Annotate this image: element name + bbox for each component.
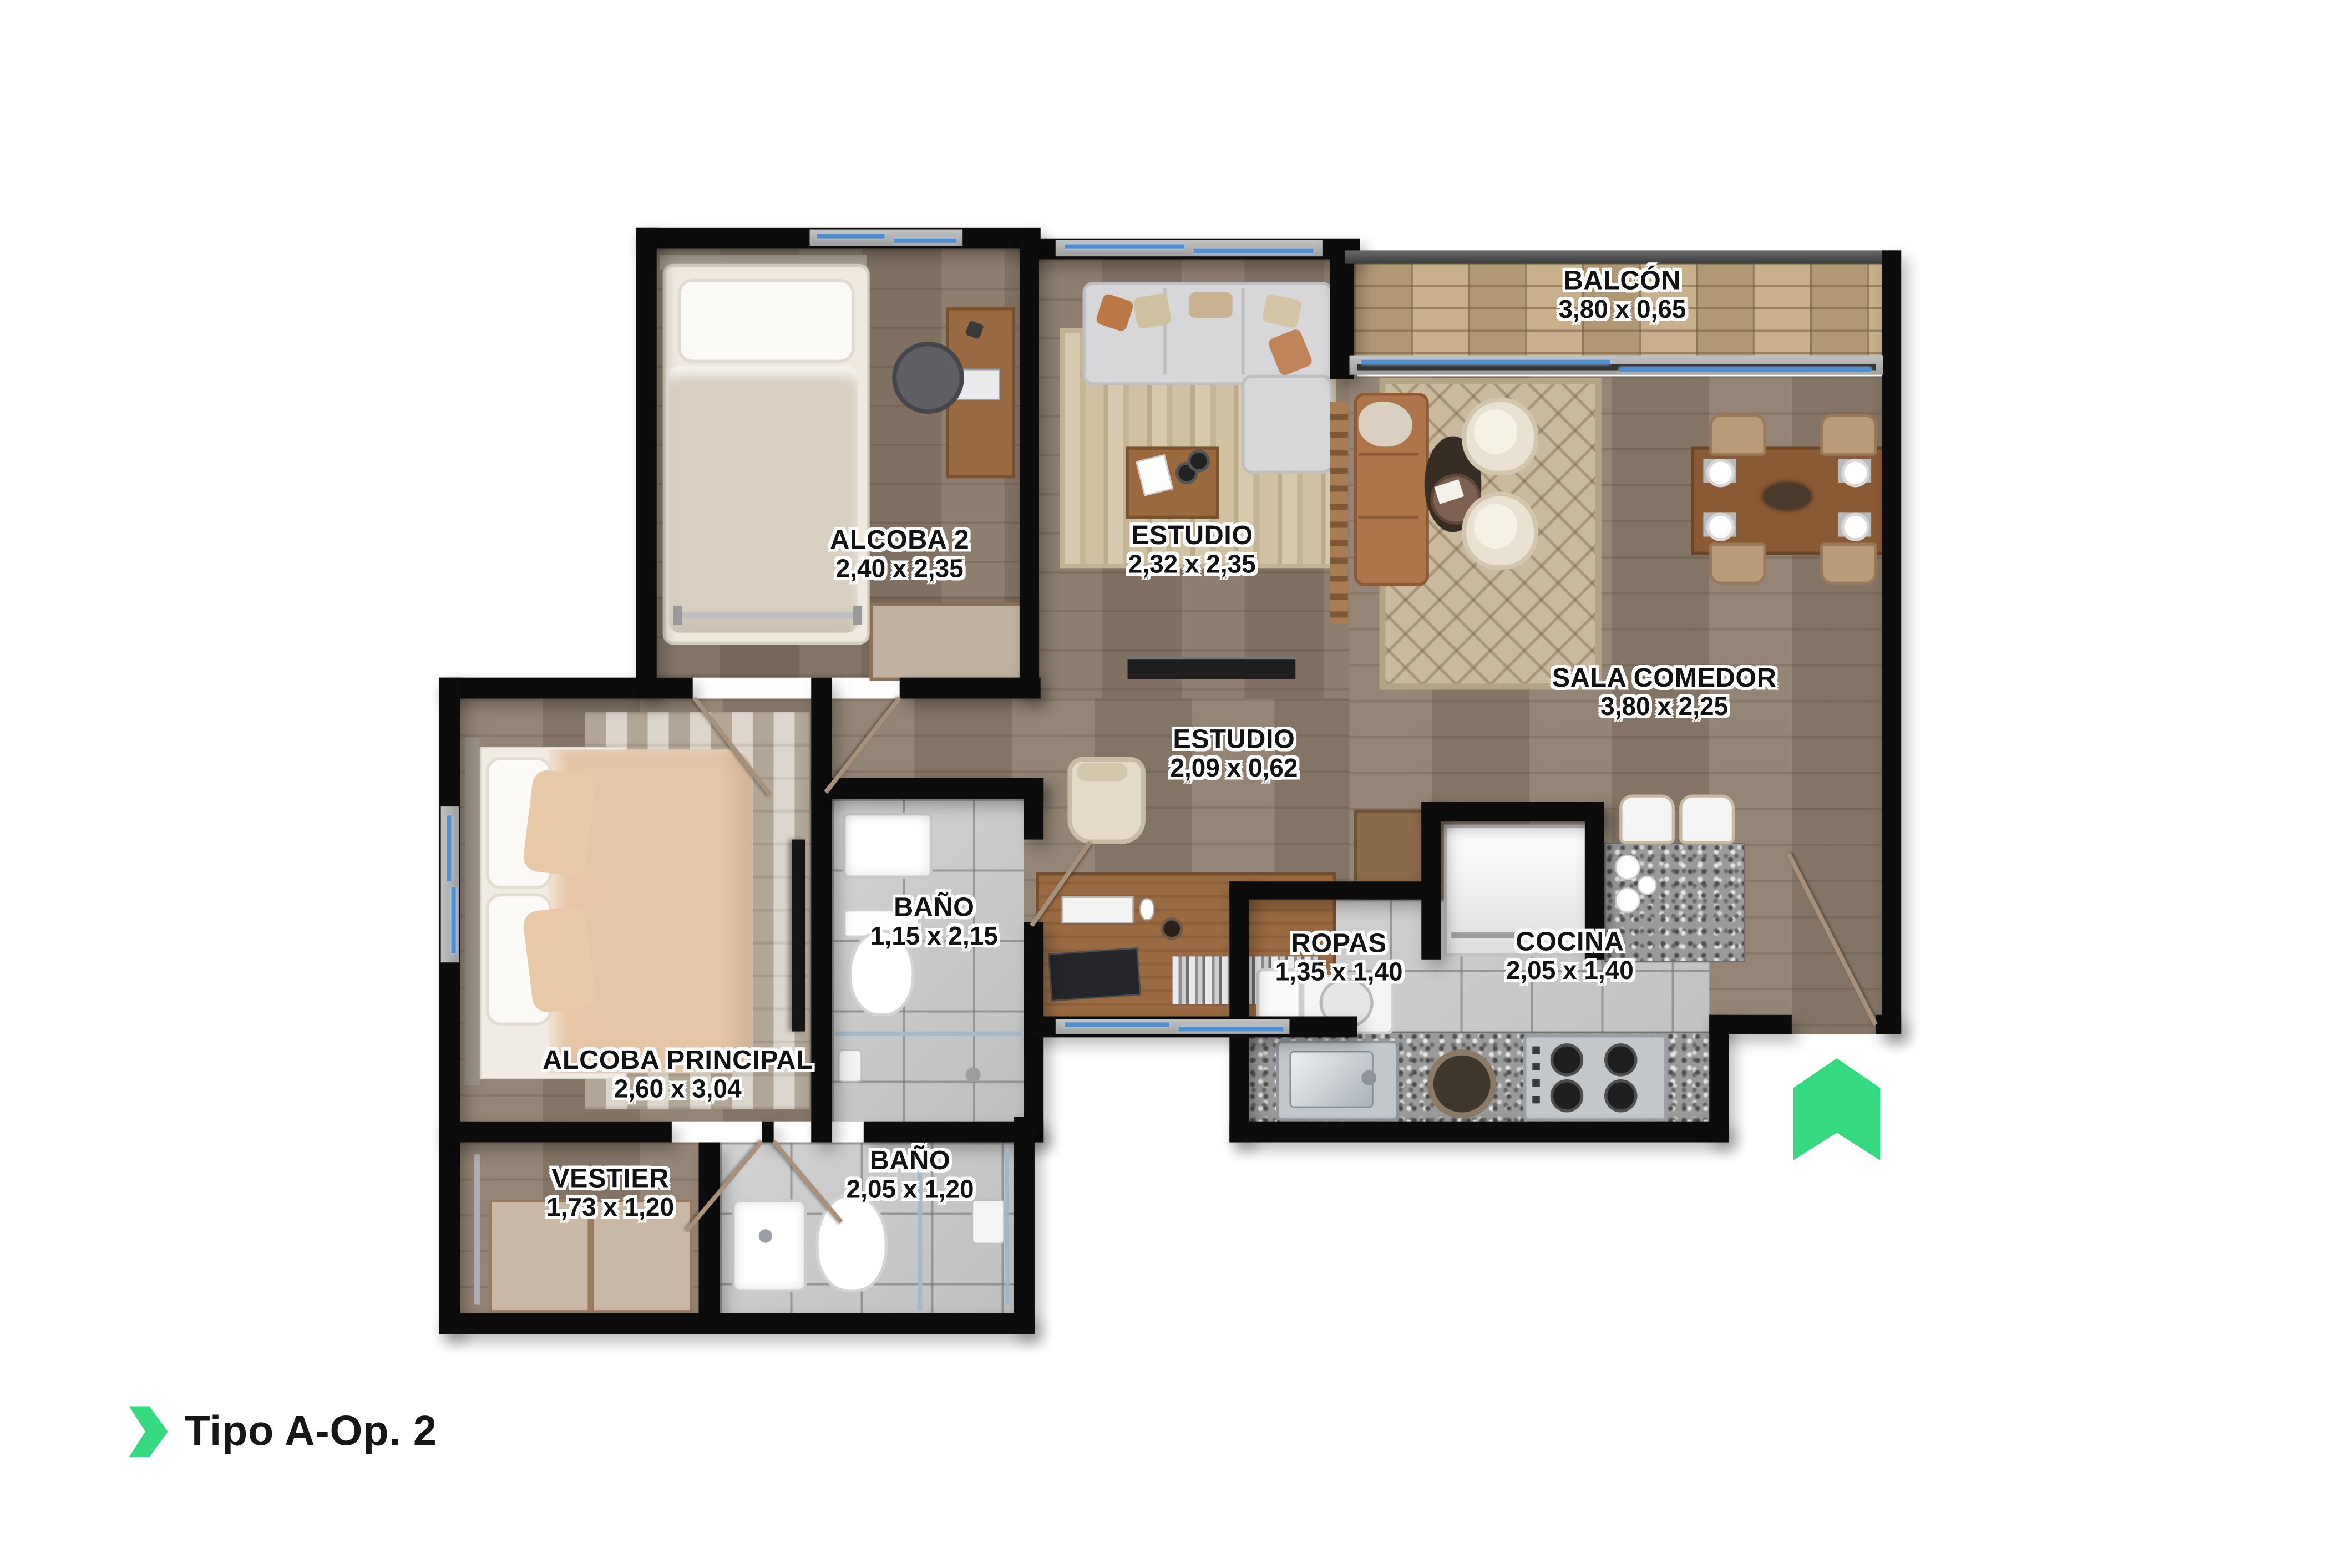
desk-mouse bbox=[1139, 898, 1154, 921]
closet-rod bbox=[678, 612, 858, 620]
room-label-balcon: BALCÓN 3,80 x 0,65 bbox=[1558, 265, 1686, 323]
bano2-shower-head bbox=[971, 1199, 1004, 1244]
floor-plan-canvas: BALCÓN 3,80 x 0,65 ALCOBA 2 2,40 x 2,35 … bbox=[0, 0, 2351, 1568]
stove-knobs bbox=[1532, 1047, 1540, 1104]
table-centerpiece bbox=[1764, 483, 1811, 510]
room-label-alcoba-principal: ALCOBA PRINCIPAL 2,60 x 3,04 bbox=[543, 1045, 813, 1103]
room-label-bano1: BAÑO 1,15 x 2,15 bbox=[870, 892, 998, 950]
sofa-seat-line2 bbox=[1242, 288, 1244, 375]
burner-3 bbox=[1551, 1079, 1583, 1112]
coffee-table-cup2 bbox=[1188, 450, 1210, 473]
room-label-alcoba2: ALCOBA 2 2,40 x 2,35 bbox=[830, 525, 969, 583]
room-label-ropas: ROPAS 1,35 x 1,40 bbox=[1275, 928, 1403, 986]
double-bed-headboard bbox=[465, 738, 480, 1085]
bed-pillow bbox=[678, 279, 855, 363]
room-label-estudio: ESTUDIO 2,32 x 2,35 bbox=[1128, 520, 1256, 579]
plate-tl bbox=[1706, 459, 1735, 487]
bano1-shower-glass bbox=[835, 1032, 1021, 1036]
kitchen-faucet bbox=[1361, 1070, 1376, 1085]
burner-1 bbox=[1551, 1043, 1583, 1076]
bar-stool-1 bbox=[1619, 794, 1675, 844]
armchair-1-seat bbox=[1474, 409, 1517, 454]
bar-stool-2 bbox=[1679, 794, 1735, 844]
leather-sofa-line2 bbox=[1359, 516, 1418, 519]
study-chair-back bbox=[1077, 763, 1128, 781]
bano1-sink bbox=[843, 813, 933, 879]
closet-sliding-panel bbox=[870, 603, 1041, 681]
leather-sofa-line1 bbox=[1359, 453, 1418, 455]
room-label-sala-comedor: SALA COMEDOR 3,80 x 2,25 bbox=[1552, 663, 1777, 721]
bano2-faucet bbox=[759, 1229, 772, 1242]
sofa-chaise bbox=[1242, 375, 1333, 474]
bano1-drain bbox=[966, 1067, 981, 1082]
bar-plate-1 bbox=[1615, 855, 1640, 880]
burner-2 bbox=[1604, 1043, 1637, 1076]
bar-plate-2 bbox=[1615, 887, 1640, 913]
sofa-pillow-tan bbox=[1189, 292, 1232, 318]
desk-keyboard bbox=[1062, 896, 1134, 923]
dining-chair-tl bbox=[1709, 414, 1766, 456]
desk-coffee-cup bbox=[1161, 917, 1183, 940]
wall-tv bbox=[792, 840, 805, 1032]
fur-throw bbox=[1359, 402, 1412, 446]
stove bbox=[1523, 1034, 1667, 1122]
vestier-rod bbox=[474, 1154, 480, 1304]
balcony-railing bbox=[1345, 250, 1901, 263]
plan-title: Tipo A-Op. 2 bbox=[129, 1406, 437, 1457]
closet-rod-bracket-l bbox=[673, 606, 682, 625]
kitchen-sink-basin bbox=[1289, 1051, 1373, 1108]
plate-tr bbox=[1841, 459, 1869, 487]
bano2-glass-panel bbox=[1005, 1148, 1009, 1304]
pillow-peach-1 bbox=[522, 769, 597, 877]
entry-arrow-icon bbox=[1793, 1058, 1881, 1160]
dining-chair-br bbox=[1820, 542, 1877, 585]
chevron-icon bbox=[129, 1406, 168, 1457]
dining-chair-tr bbox=[1820, 414, 1877, 456]
bano1-shower-head bbox=[838, 1049, 862, 1082]
sofa-pillow-beige1 bbox=[1133, 292, 1172, 329]
armchair-2-seat bbox=[1474, 504, 1517, 549]
pillow-peach-2 bbox=[522, 905, 597, 1014]
room-label-estudio2: ESTUDIO 2,09 x 0,62 bbox=[1170, 724, 1298, 782]
kitchen-pot bbox=[1427, 1049, 1496, 1118]
bar-plate-3 bbox=[1637, 875, 1656, 895]
bano2-sink bbox=[732, 1199, 807, 1292]
burner-4 bbox=[1604, 1079, 1637, 1112]
dining-chair-bl bbox=[1709, 542, 1766, 585]
tv-console bbox=[1128, 659, 1296, 679]
room-label-bano2: BAÑO 2,05 x 1,20 bbox=[847, 1145, 974, 1204]
plate-bl bbox=[1706, 512, 1735, 541]
desk-laptop-open bbox=[1048, 947, 1141, 1002]
ladder-bookshelf bbox=[1330, 402, 1347, 623]
room-label-cocina: COCINA 2,05 x 1,40 bbox=[1506, 926, 1634, 985]
room-label-vestier: VESTIER 1,73 x 1,20 bbox=[546, 1163, 674, 1221]
plate-br bbox=[1841, 512, 1869, 541]
plan-title-text: Tipo A-Op. 2 bbox=[184, 1408, 437, 1455]
desk-chair bbox=[892, 342, 964, 414]
bed-duvet bbox=[668, 366, 858, 632]
closet-rod-bracket-r bbox=[853, 606, 862, 625]
